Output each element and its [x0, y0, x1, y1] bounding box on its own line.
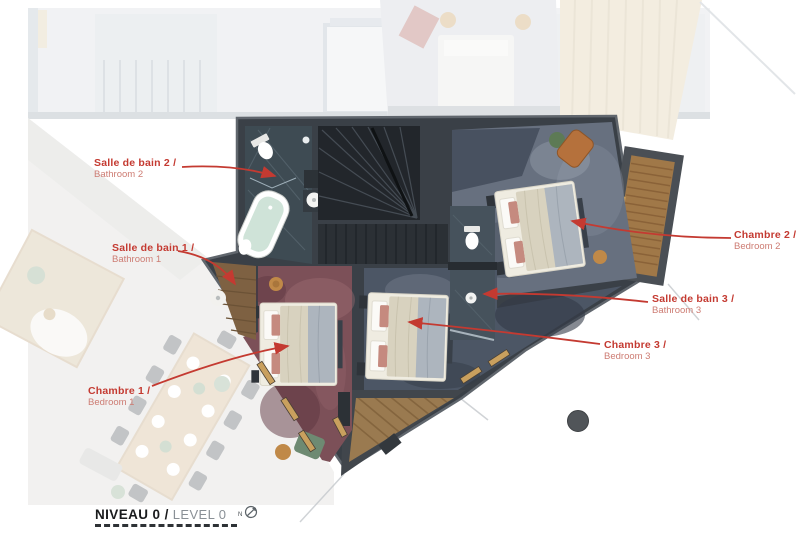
north-compass-icon: N [236, 504, 260, 520]
label-bedroom-2-fr: Chambre 2 / [734, 229, 796, 241]
label-bedroom-1-fr: Chambre 1 / [88, 385, 150, 397]
label-bedroom-1-en: Bedroom 1 [88, 398, 150, 409]
pouf-icon [275, 444, 291, 460]
label-bedroom-1: Chambre 1 / Bedroom 1 [88, 385, 150, 409]
side-table-icon [593, 250, 607, 264]
label-bathroom-2: Salle de bain 2 / Bathroom 2 [94, 157, 176, 181]
room-bathroom-3 [448, 206, 497, 340]
label-bathroom-1: Salle de bain 1 / Bathroom 1 [112, 242, 194, 266]
label-bedroom-3-en: Bedroom 3 [604, 352, 666, 363]
label-bathroom-3-en: Bathroom 3 [652, 306, 734, 317]
label-bathroom-1-fr: Salle de bain 1 / [112, 242, 194, 254]
label-bathroom-2-fr: Salle de bain 2 / [94, 157, 176, 169]
svg-text:N: N [238, 512, 242, 518]
label-bathroom-3: Salle de bain 3 / Bathroom 3 [652, 293, 734, 317]
label-bedroom-3-fr: Chambre 3 / [604, 339, 666, 351]
level-title-secondary: LEVEL 0 [173, 507, 227, 522]
shower-head-icon [303, 137, 310, 144]
title-underline [95, 524, 237, 527]
label-bedroom-3: Chambre 3 / Bedroom 3 [604, 339, 666, 363]
floor-plan-page: Salle de bain 2 / Bathroom 2 Salle de ba… [0, 0, 800, 536]
label-bathroom-3-fr: Salle de bain 3 / [652, 293, 734, 305]
label-bedroom-2: Chambre 2 / Bedroom 2 [734, 229, 796, 253]
bed-3-icon [357, 292, 455, 381]
location-dot [568, 411, 589, 432]
terrace-bottom [340, 384, 474, 476]
staircase [318, 126, 420, 220]
label-bathroom-1-en: Bathroom 1 [112, 255, 194, 266]
label-bedroom-2-en: Bedroom 2 [734, 242, 796, 253]
floor-plan-drawing [0, 0, 800, 536]
level-title: NIVEAU 0 / LEVEL 0 N [95, 503, 260, 522]
level-title-primary: NIVEAU 0 / [95, 507, 169, 522]
bed-2-icon [485, 180, 591, 278]
hallway-floor [318, 224, 448, 264]
label-bathroom-2-en: Bathroom 2 [94, 170, 176, 181]
